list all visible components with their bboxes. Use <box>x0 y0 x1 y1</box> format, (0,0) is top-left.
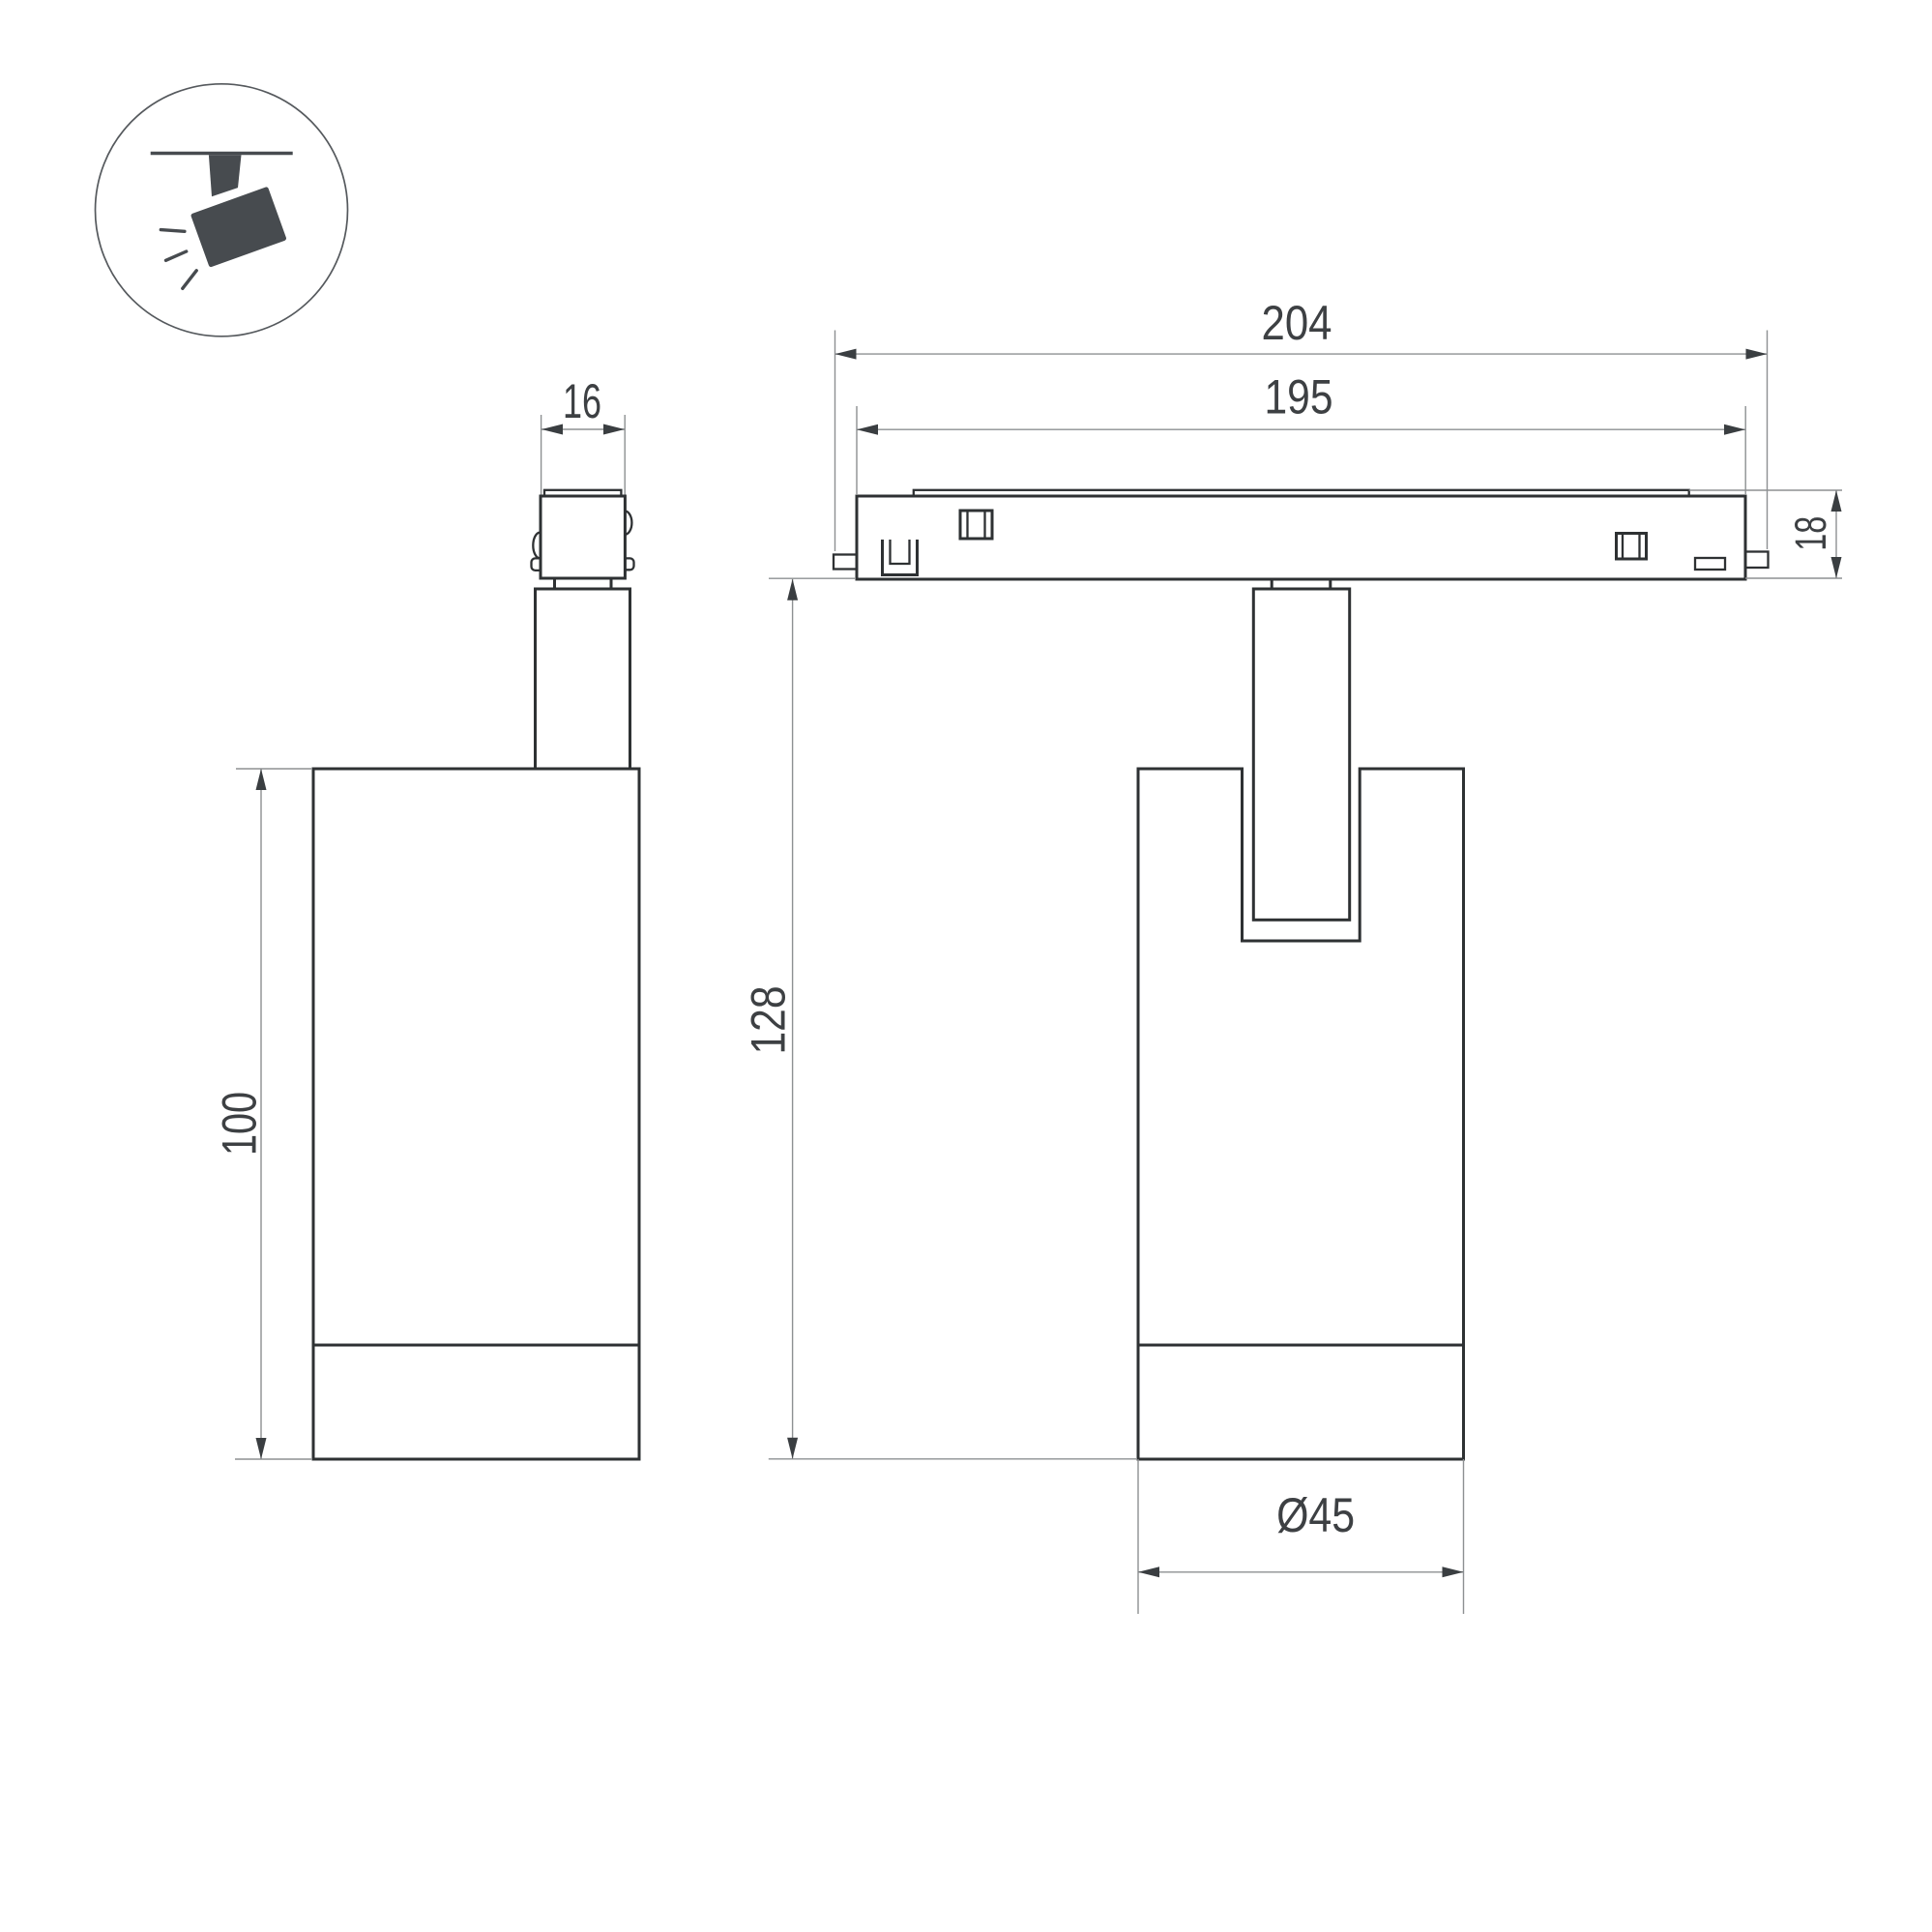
svg-text:Ø45: Ø45 <box>1276 1488 1355 1542</box>
svg-text:195: 195 <box>1265 370 1333 424</box>
svg-text:128: 128 <box>742 986 796 1055</box>
svg-text:18: 18 <box>1786 516 1835 551</box>
svg-text:16: 16 <box>563 374 601 428</box>
svg-text:100: 100 <box>213 1092 267 1156</box>
svg-text:204: 204 <box>1262 296 1332 350</box>
